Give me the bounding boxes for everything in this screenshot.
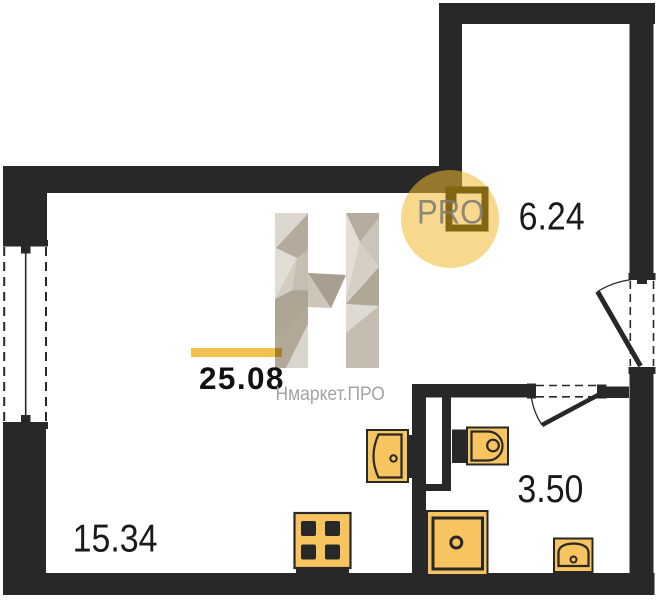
svg-text:15.34: 15.34 — [73, 516, 158, 560]
svg-text:25.08: 25.08 — [199, 360, 285, 396]
svg-text:PRO: PRO — [417, 192, 484, 231]
svg-text:Нмаркет.ПРО: Нмаркет.ПРО — [276, 382, 385, 404]
svg-text:3.50: 3.50 — [517, 467, 583, 511]
svg-text:6.24: 6.24 — [519, 194, 585, 238]
